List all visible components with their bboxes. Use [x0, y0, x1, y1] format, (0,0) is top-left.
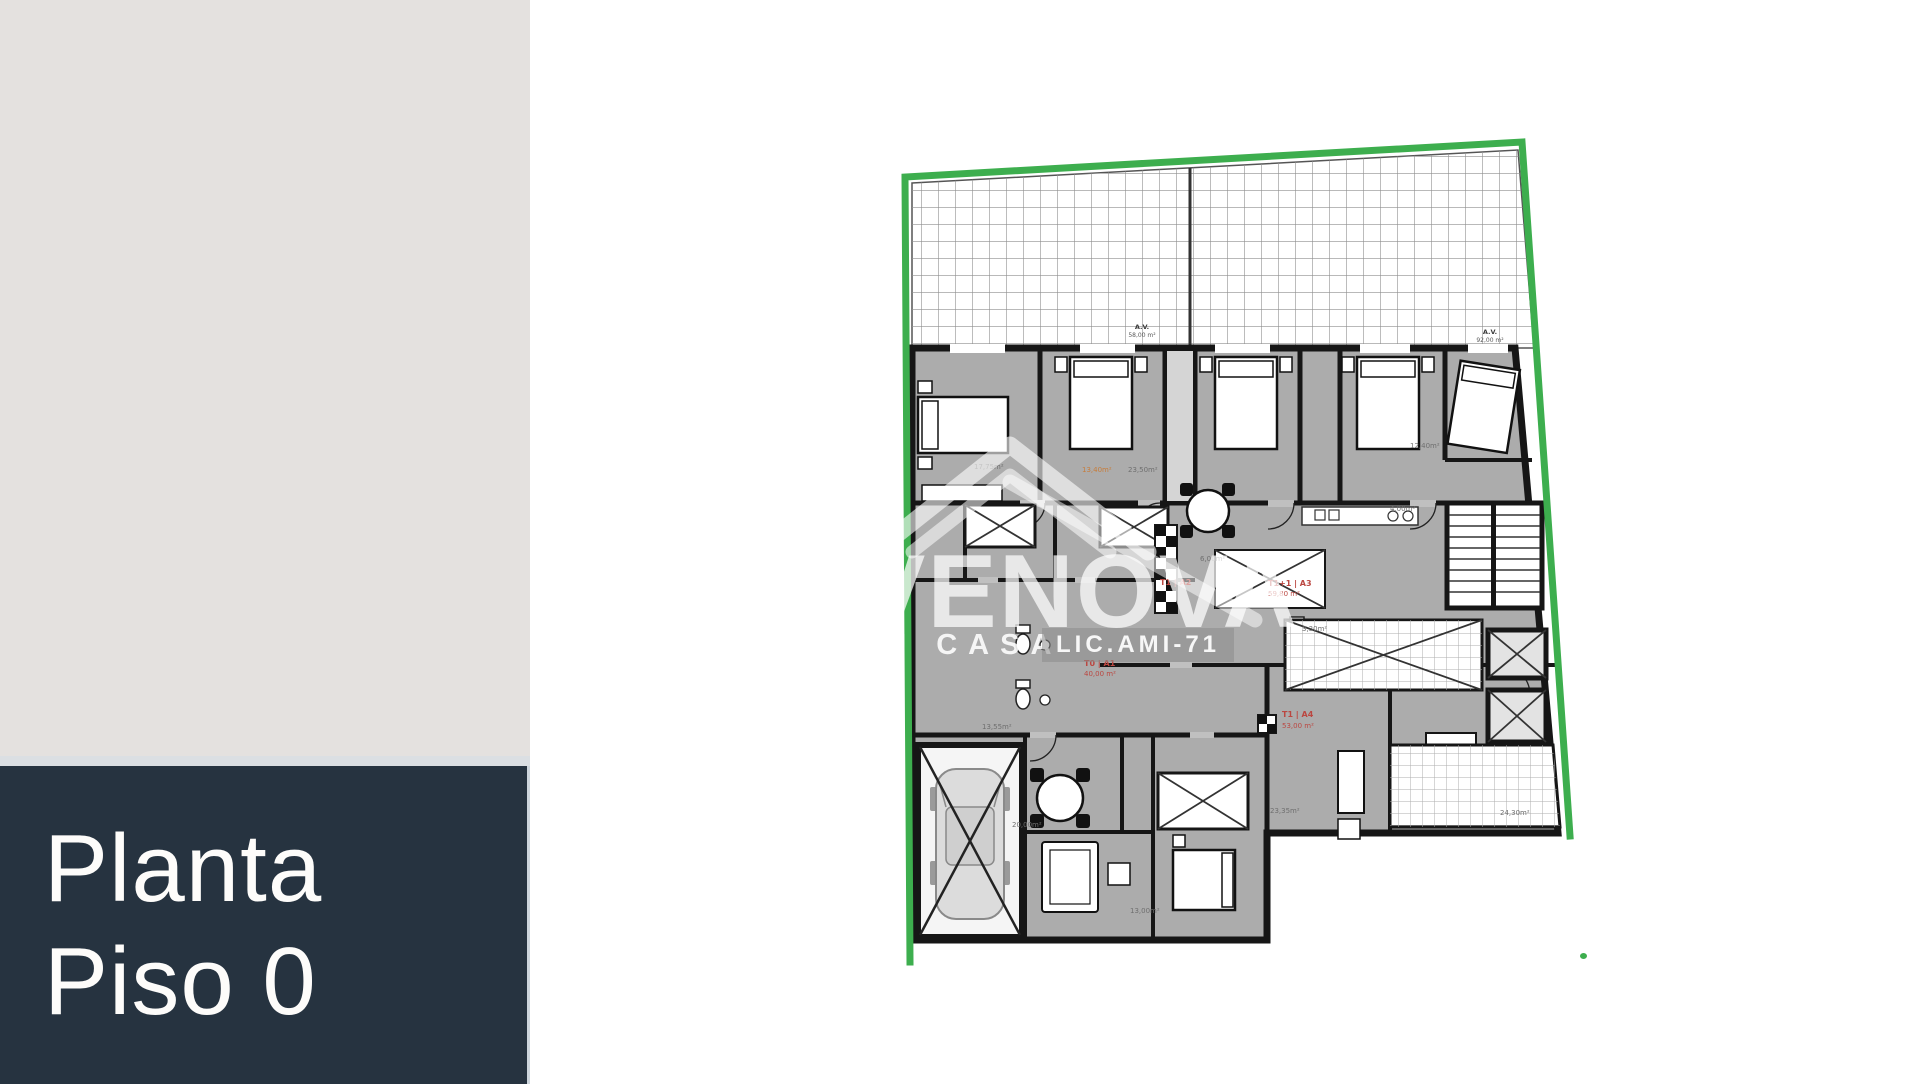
terrace-right-label: A.V. — [1483, 328, 1497, 336]
sink-2 — [1040, 695, 1050, 705]
floor-plan-drawing: A.V. 58,00 m² A.V. 92,00 m² T1 | A2 T1+1… — [870, 105, 1610, 985]
living-a4-furniture — [1338, 751, 1364, 839]
unit-a1-area: 40,00 m² — [1084, 670, 1116, 678]
elevator-shaft-2 — [1488, 690, 1546, 742]
terrace-left-label: A.V. — [1135, 323, 1149, 331]
toilet-1 — [1016, 625, 1030, 654]
room-label-6: 13,55m² — [982, 723, 1012, 731]
room-label-0: 17,75m² — [974, 463, 1004, 471]
bed-room-4 — [1342, 357, 1434, 449]
room-label-10: 24,30m² — [1500, 809, 1530, 817]
car-icon — [930, 769, 1010, 919]
page-title-line-1: Planta — [44, 812, 322, 925]
page-title: Planta Piso 0 — [44, 812, 322, 1039]
room-label-2: 23,50m² — [1128, 466, 1158, 474]
terrace-grid — [912, 150, 1534, 348]
patio-grid — [1390, 745, 1560, 827]
unit-a3-label: T1+1 | A3 — [1268, 579, 1312, 588]
room-label-8: 23,35m² — [1270, 807, 1300, 815]
room-label-9: 13,00m² — [1130, 907, 1160, 915]
sidebar-top-panel — [0, 0, 530, 756]
toilet-2 — [1016, 680, 1030, 709]
unit-a2-label: T1 | A2 — [1160, 578, 1191, 587]
room-label-7: 20,00m² — [1012, 821, 1042, 829]
bed-room-3 — [1200, 357, 1292, 449]
unit-a4-label: T1 | A4 — [1282, 710, 1314, 719]
garage — [918, 745, 1022, 937]
dining-table-1 — [1180, 483, 1235, 538]
floor-plan: A.V. 58,00 m² A.V. 92,00 m² T1 | A2 T1+1… — [870, 105, 1610, 985]
unit-a3-area: 59,80 m² — [1268, 590, 1300, 598]
terrace-right-area: 92,00 m² — [1476, 337, 1504, 344]
bed-room-2 — [1055, 357, 1147, 449]
unit-a4-area: 53,00 m² — [1282, 722, 1314, 730]
room-label-1: 13,40m² — [1082, 466, 1112, 474]
green-dot — [1580, 953, 1587, 959]
elevator-shaft-1 — [1488, 630, 1546, 678]
terrace-left-area: 58,00 m² — [1128, 332, 1156, 339]
room-label-11: 3,30m² — [1302, 625, 1327, 633]
room-label-3: 12,40m² — [1410, 442, 1440, 450]
stairwell — [1447, 503, 1542, 608]
corridor — [1167, 351, 1193, 501]
unit-a1-label: T0 | A1 — [1084, 659, 1116, 668]
dining-table-2 — [1030, 768, 1090, 828]
room-label-4: 4,00m² — [1390, 505, 1415, 513]
bed-room-5 — [1447, 361, 1519, 453]
sidebar-divider — [0, 756, 530, 766]
room-label-5: 6,00m² — [1200, 555, 1225, 563]
sink-1 — [1040, 640, 1050, 650]
page-title-line-2: Piso 0 — [44, 925, 322, 1038]
